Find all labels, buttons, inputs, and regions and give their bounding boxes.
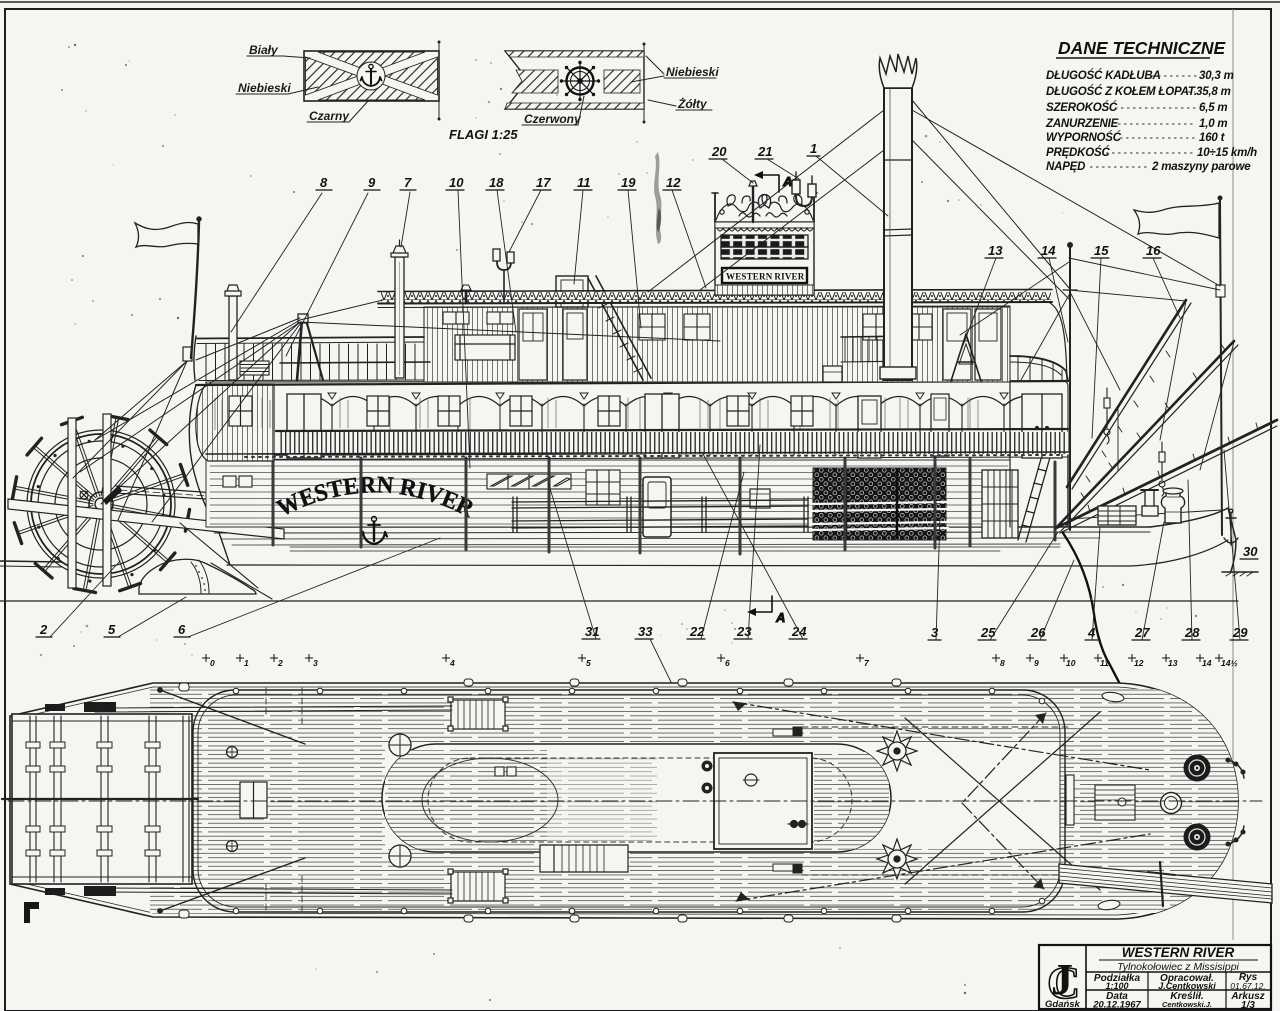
svg-text:3: 3 [313,658,318,668]
svg-text:14½: 14½ [1221,658,1238,668]
svg-text:DANE TECHNICZNE: DANE TECHNICZNE [1058,38,1227,58]
svg-text:PRĘDKOŚĆ: PRĘDKOŚĆ [1046,146,1110,159]
svg-text:26: 26 [1030,625,1046,640]
svg-text:13: 13 [1168,658,1178,668]
svg-text:20.12.1967: 20.12.1967 [1092,1000,1141,1011]
svg-text:6: 6 [178,622,186,637]
svg-text:6: 6 [725,658,730,668]
svg-text:5: 5 [108,622,116,637]
svg-text:14: 14 [1202,658,1212,668]
svg-text:Niebieski: Niebieski [666,65,719,79]
svg-text:12: 12 [666,175,681,190]
svg-text:J: J [1051,955,1073,1004]
svg-text:160 t: 160 t [1199,132,1226,144]
svg-text:J.Centkowski: J.Centkowski [1158,981,1216,991]
svg-text:01.67.12.: 01.67.12. [1230,981,1265,991]
svg-text:25: 25 [980,625,996,640]
svg-text:WESTERN RIVER: WESTERN RIVER [726,272,805,282]
svg-text:Gdańsk: Gdańsk [1045,999,1081,1010]
svg-text:23: 23 [736,624,752,639]
svg-text:6,5 m: 6,5 m [1199,102,1227,114]
svg-text:Biały: Biały [249,43,279,57]
svg-text:10÷15 km/h: 10÷15 km/h [1197,147,1257,159]
svg-text:Czarny: Czarny [309,109,350,123]
svg-text:FLAGI 1:25: FLAGI 1:25 [449,127,518,142]
svg-text:1: 1 [810,141,817,156]
svg-text:ZANURZENIE: ZANURZENIE [1045,118,1119,130]
svg-text:35,8 m: 35,8 m [1196,86,1231,98]
svg-text:11: 11 [1100,658,1109,668]
svg-text:WYPORNOŚĆ: WYPORNOŚĆ [1046,131,1122,144]
svg-text:10: 10 [449,175,464,190]
svg-text:17: 17 [536,175,551,190]
svg-text:20: 20 [711,144,727,159]
svg-text:9: 9 [368,175,376,190]
svg-text:1,0 m: 1,0 m [1199,118,1227,130]
svg-text:Centkowski.J.: Centkowski.J. [1162,1000,1212,1009]
svg-text:Czerwony: Czerwony [524,112,582,126]
svg-text:8: 8 [320,175,328,190]
svg-text:18: 18 [489,175,504,190]
svg-text:11: 11 [577,175,591,190]
svg-text:14: 14 [1041,243,1056,258]
svg-text:10: 10 [1066,658,1076,668]
svg-text:16: 16 [1146,243,1161,258]
svg-text:2: 2 [39,622,48,637]
svg-text:4: 4 [449,658,455,668]
svg-text:DŁUGOŚĆ KADŁUBA: DŁUGOŚĆ KADŁUBA [1046,69,1161,82]
svg-text:SZEROKOŚĆ: SZEROKOŚĆ [1046,101,1118,114]
svg-text:Tylnokołowiec z Missisippi: Tylnokołowiec z Missisippi [1117,961,1239,973]
svg-text:2: 2 [277,658,283,668]
svg-text:3: 3 [931,625,939,640]
svg-text:Żółty: Żółty [677,96,708,111]
svg-text:DŁUGOŚĆ Z KOŁEM ŁOPAT.: DŁUGOŚĆ Z KOŁEM ŁOPAT. [1046,85,1197,98]
svg-text:A: A [775,610,785,625]
svg-text:0: 0 [210,658,215,668]
svg-text:Niebieski: Niebieski [238,81,291,95]
svg-text:1:100: 1:100 [1105,981,1128,991]
svg-text:WESTERN RIVER: WESTERN RIVER [1122,945,1235,960]
svg-text:7: 7 [404,175,412,190]
svg-text:33: 33 [638,624,653,639]
svg-text:21: 21 [757,144,772,159]
svg-text:5: 5 [586,658,591,668]
svg-text:2 maszyny parowe: 2 maszyny parowe [1151,161,1251,173]
svg-text:13: 13 [988,243,1003,258]
svg-text:8: 8 [1000,658,1005,668]
svg-text:30: 30 [1243,544,1258,559]
svg-text:9: 9 [1034,658,1039,668]
svg-text:1: 1 [244,658,249,668]
svg-text:NAPĘD: NAPĘD [1046,161,1085,173]
svg-text:4: 4 [1087,625,1096,640]
svg-text:30,3 m: 30,3 m [1199,70,1234,82]
svg-text:12: 12 [1134,658,1144,668]
svg-text:1/3: 1/3 [1241,1000,1255,1011]
svg-text:15: 15 [1094,243,1109,258]
svg-text:19: 19 [621,175,636,190]
